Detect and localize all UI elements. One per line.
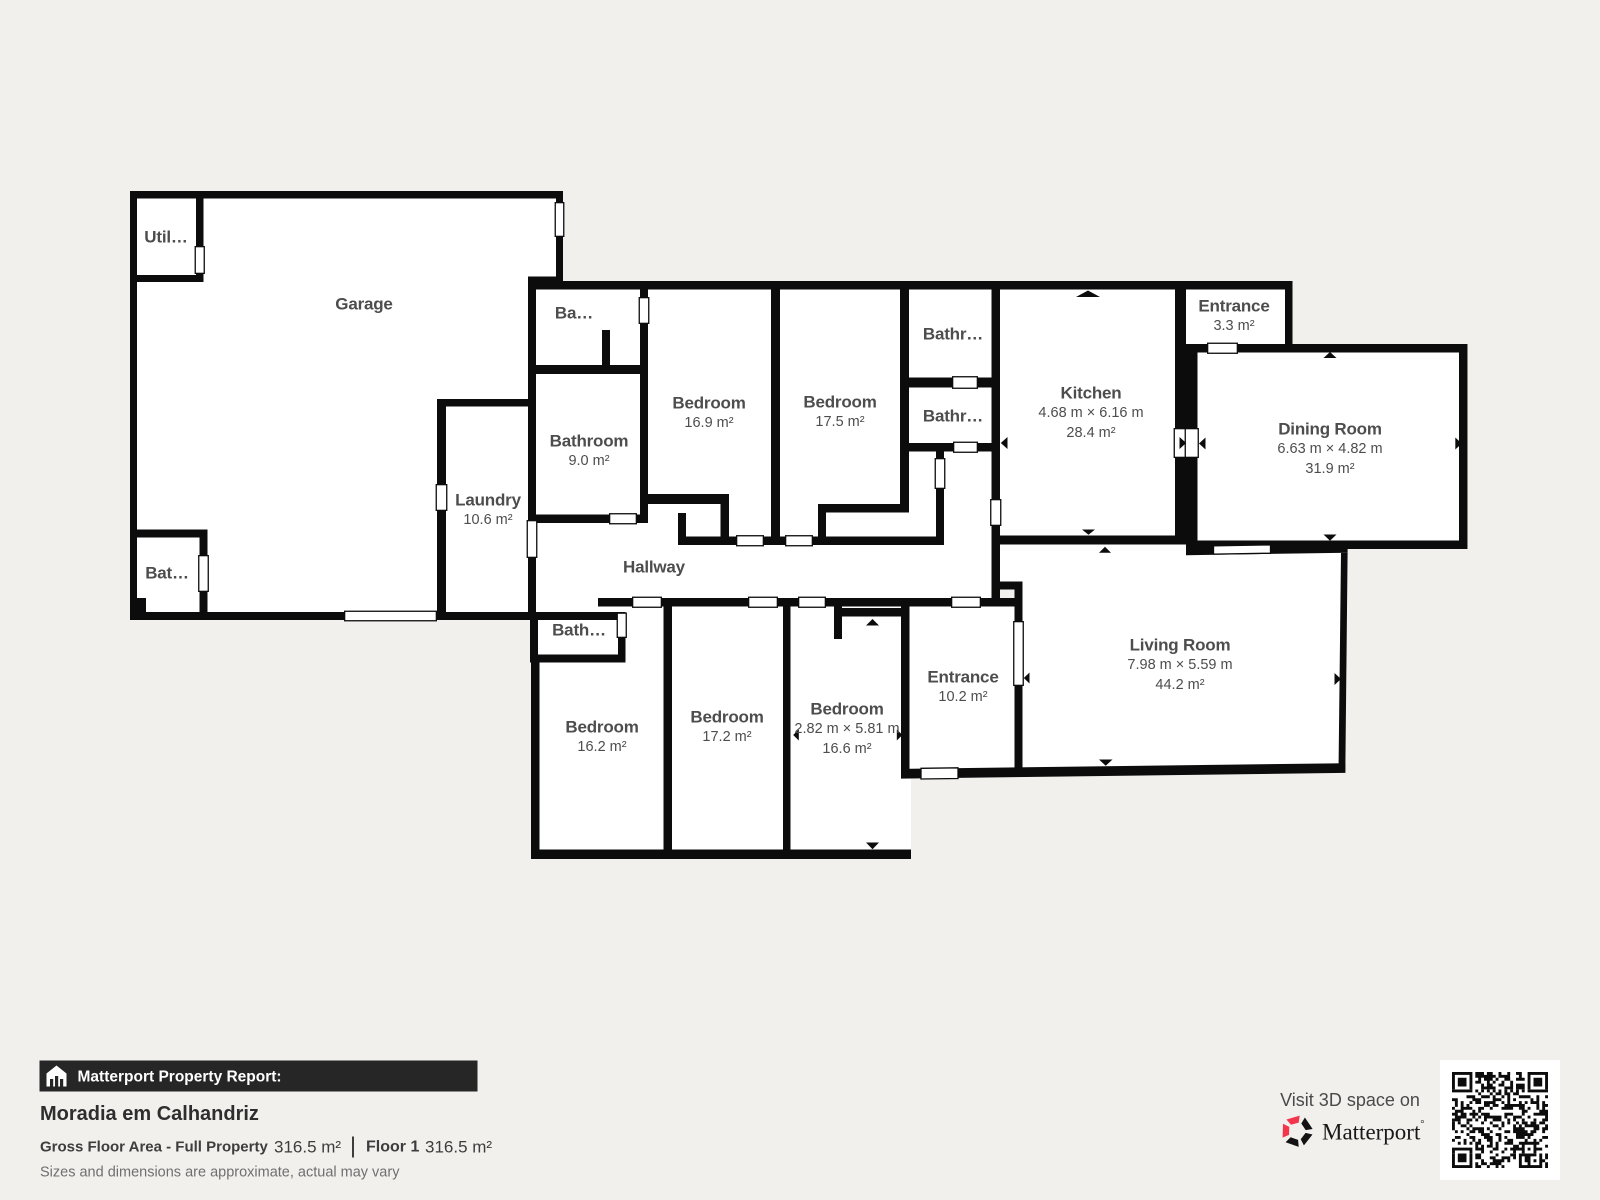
svg-text:Hallway: Hallway xyxy=(623,558,686,577)
svg-text:2.82 m × 5.81 m: 2.82 m × 5.81 m xyxy=(794,721,899,737)
svg-text:Matterport Property Report:: Matterport Property Report: xyxy=(78,1068,282,1085)
svg-text:Bedroom: Bedroom xyxy=(810,700,883,719)
svg-text:Laundry: Laundry xyxy=(455,491,521,510)
svg-text:Garage: Garage xyxy=(335,295,392,314)
svg-text:7.98 m × 5.59 m: 7.98 m × 5.59 m xyxy=(1127,657,1232,673)
svg-text:Bat…: Bat… xyxy=(145,564,189,583)
svg-text:Bathr…: Bathr… xyxy=(923,407,983,426)
svg-text:Kitchen: Kitchen xyxy=(1061,384,1122,403)
svg-text:10.6 m²: 10.6 m² xyxy=(463,512,512,528)
svg-text:Ba…: Ba… xyxy=(555,304,593,323)
svg-text:4.68 m × 6.16 m: 4.68 m × 6.16 m xyxy=(1038,405,1143,421)
svg-text:Bathroom: Bathroom xyxy=(550,432,629,451)
svg-text:Sizes and dimensions are appro: Sizes and dimensions are approximate, ac… xyxy=(40,1165,400,1181)
svg-text:16.2 m²: 16.2 m² xyxy=(577,739,626,755)
svg-text:Bedroom: Bedroom xyxy=(803,393,876,412)
svg-text:17.2 m²: 17.2 m² xyxy=(702,729,751,745)
svg-text:Visit 3D space on: Visit 3D space on xyxy=(1280,1090,1420,1110)
svg-text:Bedroom: Bedroom xyxy=(565,718,638,737)
svg-text:Entrance: Entrance xyxy=(927,668,998,687)
svg-text:17.5 m²: 17.5 m² xyxy=(815,414,864,430)
svg-text:9.0 m²: 9.0 m² xyxy=(568,453,609,469)
svg-text:31.9 m²: 31.9 m² xyxy=(1305,461,1354,477)
svg-text:10.2 m²: 10.2 m² xyxy=(938,689,987,705)
svg-text:Moradia em Calhandriz: Moradia em Calhandriz xyxy=(40,1103,259,1125)
svg-text:Gross Floor Area - Full Proper: Gross Floor Area - Full Property xyxy=(40,1139,268,1156)
svg-text:316.5 m²: 316.5 m² xyxy=(274,1138,341,1157)
svg-text:6.63 m × 4.82 m: 6.63 m × 4.82 m xyxy=(1277,441,1382,457)
svg-text:Entrance: Entrance xyxy=(1198,297,1269,316)
svg-text:Bedroom: Bedroom xyxy=(690,708,763,727)
svg-text:28.4 m²: 28.4 m² xyxy=(1066,425,1115,441)
svg-text:Dining Room: Dining Room xyxy=(1278,420,1382,439)
svg-text:Floor 1: Floor 1 xyxy=(366,1139,419,1156)
svg-text:Living Room: Living Room xyxy=(1130,636,1231,655)
svg-text:3.3 m²: 3.3 m² xyxy=(1213,318,1254,334)
svg-text:316.5 m²: 316.5 m² xyxy=(425,1138,492,1157)
svg-text:Bath…: Bath… xyxy=(552,621,606,640)
svg-text:Matterport°: Matterport° xyxy=(1322,1119,1424,1145)
svg-text:Util…: Util… xyxy=(144,228,187,247)
svg-text:16.6 m²: 16.6 m² xyxy=(822,741,871,757)
svg-text:16.9 m²: 16.9 m² xyxy=(684,415,733,431)
svg-text:Bathr…: Bathr… xyxy=(923,325,983,344)
svg-text:Bedroom: Bedroom xyxy=(672,394,745,413)
svg-text:44.2 m²: 44.2 m² xyxy=(1155,677,1204,693)
